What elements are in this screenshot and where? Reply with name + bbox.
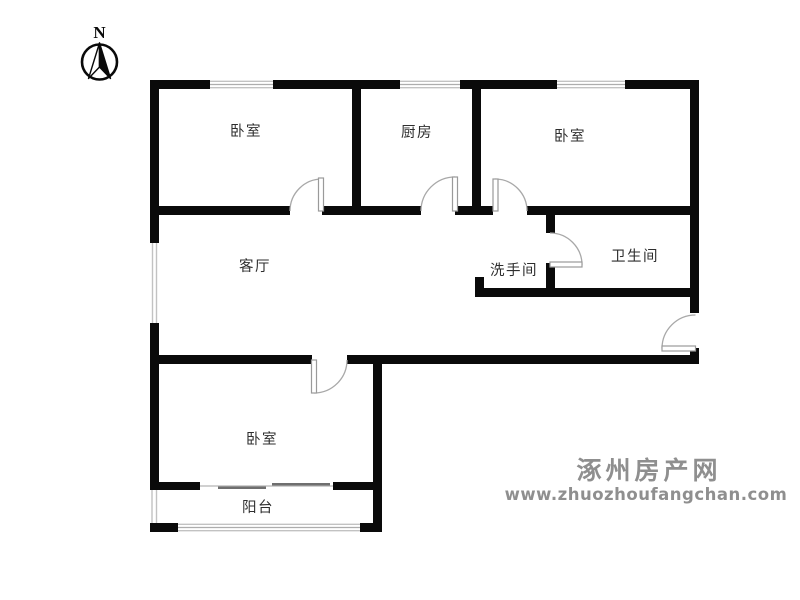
- door-bathroom: [550, 233, 582, 267]
- door-leaf: [312, 360, 317, 393]
- door-leaf: [319, 178, 324, 211]
- room-label-bedroom-top-left: 卧室: [230, 123, 262, 140]
- wall: [150, 355, 312, 364]
- door-leaf: [550, 262, 582, 267]
- window-bedroom-top-left: [210, 81, 273, 87]
- wall: [150, 523, 178, 532]
- door-bedroom-bottom: [312, 360, 348, 393]
- wall: [475, 277, 484, 288]
- wall: [373, 355, 382, 532]
- door-bedroom-top-right: [493, 179, 527, 211]
- sliding-door-panel: [218, 487, 266, 490]
- wall: [347, 355, 699, 364]
- door-swing-arc: [290, 179, 322, 211]
- wall: [150, 482, 200, 490]
- door-swing-arc: [495, 179, 527, 211]
- wall: [352, 80, 361, 215]
- wall: [625, 80, 699, 89]
- wall: [322, 206, 421, 215]
- door-leaf: [453, 177, 458, 211]
- door-bedroom-top-left: [290, 178, 324, 211]
- door-entrance: [662, 315, 696, 351]
- door-swing-arc: [550, 233, 582, 265]
- wall: [546, 206, 555, 233]
- wall: [690, 80, 699, 313]
- room-label-washroom: 洗手间: [490, 262, 538, 279]
- watermark-site-name: 涿州房产网: [576, 456, 721, 485]
- floor-plan-page: N: [0, 0, 800, 600]
- room-label-bathroom: 卫生间: [611, 248, 659, 265]
- watermark-site-url: www.zhuozhoufangchan.com: [505, 485, 788, 504]
- door-leaf: [662, 346, 696, 351]
- room-label-bedroom-bottom: 卧室: [246, 431, 278, 448]
- door-kitchen: [421, 177, 458, 211]
- door-swing-arc: [314, 360, 347, 393]
- wall: [150, 206, 290, 215]
- window-kitchen: [400, 81, 460, 87]
- sliding-door-balcony: [200, 483, 333, 489]
- compass-north-label: N: [93, 23, 106, 42]
- window-living-room: [153, 243, 157, 323]
- sliding-door-panel: [272, 483, 330, 486]
- wall: [273, 80, 400, 89]
- door-swing-arc: [421, 177, 455, 211]
- room-label-kitchen: 厨房: [401, 124, 433, 141]
- door-swing-arc: [662, 315, 696, 349]
- wall: [333, 482, 382, 490]
- compass: N: [82, 23, 117, 80]
- watermark: 涿州房产网 www.zhuozhoufangchan.com: [505, 456, 788, 504]
- wall: [475, 288, 699, 297]
- room-label-balcony: 阳台: [242, 499, 274, 516]
- floor-plan-canvas: N: [0, 0, 800, 600]
- window-balcony-side: [152, 490, 157, 523]
- door-leaf: [493, 179, 498, 211]
- wall: [472, 80, 481, 215]
- wall: [150, 323, 159, 490]
- wall: [150, 80, 159, 243]
- room-label-bedroom-top-right: 卧室: [554, 128, 586, 145]
- window-bedroom-top-right: [557, 81, 625, 87]
- wall: [360, 523, 382, 532]
- room-label-living-room: 客厅: [239, 258, 271, 275]
- window-balcony-front: [178, 524, 360, 530]
